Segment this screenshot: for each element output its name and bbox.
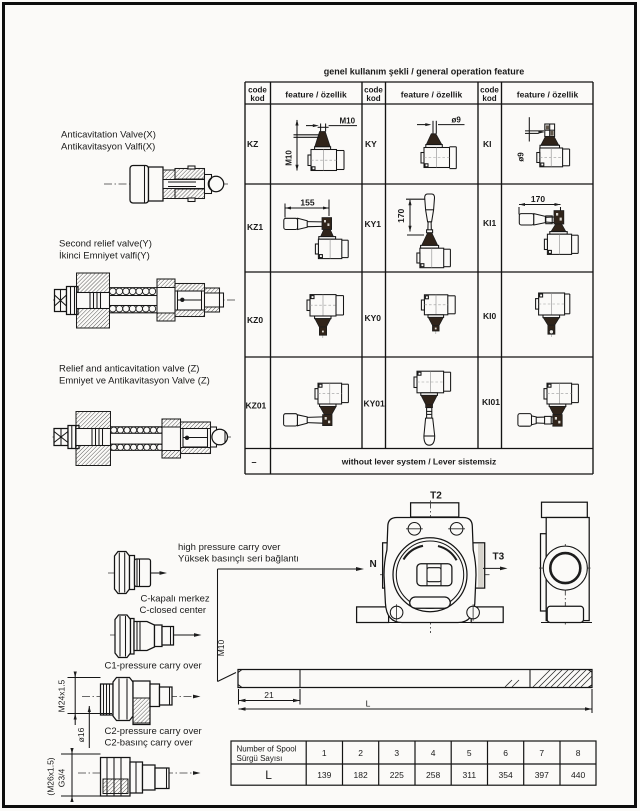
svg-text:258: 258 [426, 770, 440, 780]
svg-text:170: 170 [396, 208, 406, 222]
svg-text:M10: M10 [340, 116, 356, 125]
svg-text:Yüksek basınçlı seri bağlantı: Yüksek basınçlı seri bağlantı [178, 554, 299, 565]
svg-text:139: 139 [317, 770, 331, 780]
svg-text:1: 1 [322, 748, 327, 758]
svg-text:feature / özellik: feature / özellik [285, 90, 347, 100]
svg-text:8: 8 [576, 748, 581, 758]
svg-text:6: 6 [503, 748, 508, 758]
svg-text:KY01: KY01 [364, 399, 386, 409]
svg-text:311: 311 [463, 770, 477, 780]
svg-text:440: 440 [571, 770, 585, 780]
svg-text:170: 170 [531, 194, 545, 204]
svg-text:T3: T3 [493, 552, 505, 563]
svg-text:KI01: KI01 [482, 397, 500, 407]
svg-text:KY1: KY1 [365, 219, 382, 229]
svg-text:21: 21 [264, 690, 274, 700]
svg-text:2: 2 [358, 748, 363, 758]
svg-text:kod: kod [250, 94, 264, 103]
svg-text:L: L [265, 768, 272, 782]
svg-text:(M26x1.5): (M26x1.5) [46, 757, 56, 795]
svg-text:KI0: KI0 [483, 311, 497, 321]
svg-text:C2-pressure carry over: C2-pressure carry over [105, 726, 202, 737]
svg-text:C2-basınç carry over: C2-basınç carry over [105, 738, 193, 749]
svg-text:KZ0: KZ0 [247, 315, 263, 325]
svg-text:5: 5 [467, 748, 472, 758]
svg-text:Antikavitasyon Valfi(X): Antikavitasyon Valfi(X) [61, 142, 155, 153]
svg-text:ø16: ø16 [76, 727, 86, 742]
svg-text:KY: KY [365, 139, 377, 149]
svg-text:ø9: ø9 [517, 152, 526, 162]
svg-text:kod: kod [482, 94, 496, 103]
svg-text:4: 4 [431, 748, 436, 758]
svg-text:Number of Spool: Number of Spool [237, 745, 297, 754]
svg-text:L: L [366, 699, 371, 709]
svg-text:feature / özellik: feature / özellik [401, 90, 463, 100]
svg-text:KZ01: KZ01 [246, 401, 267, 411]
svg-text:Emniyet ve Antikavitasyon Valv: Emniyet ve Antikavitasyon Valve (Z) [59, 376, 210, 387]
svg-text:G3/4: G3/4 [57, 769, 67, 788]
svg-text:Second relief valve(Y): Second relief valve(Y) [59, 239, 152, 250]
svg-text:KI1: KI1 [483, 218, 497, 228]
svg-text:Sürgü Sayısı: Sürgü Sayısı [237, 754, 283, 763]
svg-text:high pressure carry over: high pressure carry over [178, 542, 280, 553]
svg-text:KY0: KY0 [365, 313, 382, 323]
svg-text:KZ: KZ [247, 139, 258, 149]
svg-text:M24x1.5: M24x1.5 [57, 679, 67, 712]
svg-text:182: 182 [354, 770, 368, 780]
svg-text:M10: M10 [216, 639, 226, 656]
svg-text:N: N [370, 559, 377, 570]
svg-text:155: 155 [300, 198, 314, 208]
svg-text:7: 7 [539, 748, 544, 758]
svg-text:M10: M10 [285, 150, 294, 166]
svg-text:genel kullanım şekli / general: genel kullanım şekli / general operation… [324, 67, 525, 77]
svg-text:C1-pressure carry over: C1-pressure carry over [105, 661, 202, 672]
svg-text:397: 397 [535, 770, 549, 780]
svg-text:Relief and anticavitation valv: Relief and anticavitation valve (Z) [59, 364, 199, 375]
svg-text:Anticavitation Valve(X): Anticavitation Valve(X) [61, 130, 156, 141]
svg-text:ø9: ø9 [452, 115, 462, 124]
svg-text:KI: KI [483, 139, 492, 149]
svg-text:354: 354 [499, 770, 513, 780]
svg-text:C-kapalı merkez: C-kapalı merkez [141, 594, 210, 605]
svg-text:T2: T2 [430, 491, 442, 502]
svg-text:C-closed center: C-closed center [140, 605, 207, 616]
svg-text:KZ1: KZ1 [247, 222, 263, 232]
svg-text:kod: kod [366, 94, 380, 103]
svg-text:–: – [251, 457, 256, 467]
svg-text:İkinci Emniyet valfi(Y): İkinci Emniyet valfi(Y) [59, 251, 150, 262]
svg-text:225: 225 [390, 770, 404, 780]
svg-text:3: 3 [394, 748, 399, 758]
svg-text:feature / özellik: feature / özellik [517, 90, 579, 100]
svg-text:without lever system / Lever s: without lever system / Lever sistemsiz [341, 457, 496, 467]
